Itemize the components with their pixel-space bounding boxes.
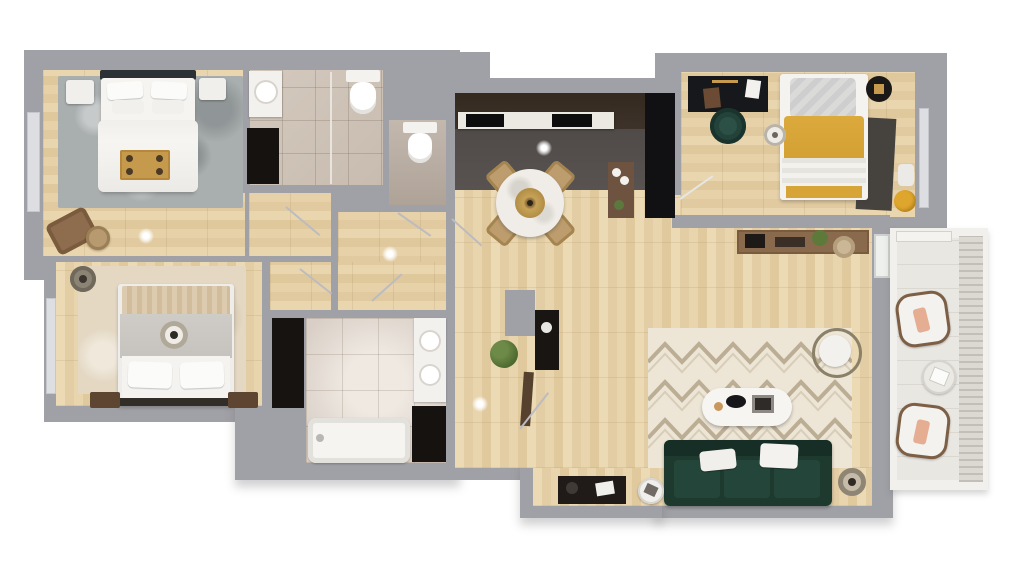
- room-corridor: [249, 193, 338, 256]
- rolled-towel: [620, 176, 629, 185]
- wall-wc-bottom: [338, 205, 446, 212]
- basket: [833, 236, 855, 258]
- wall-bath2-top: [306, 310, 446, 318]
- toilet-bowl: [350, 82, 376, 114]
- plant: [490, 340, 518, 368]
- wardrobe: [272, 318, 304, 408]
- window-bedroom2: [46, 298, 56, 394]
- bed2-pillow: [180, 361, 225, 389]
- ceiling-spot: [472, 396, 488, 412]
- laundry-basket: [898, 164, 914, 186]
- toilet-tank: [403, 122, 437, 133]
- media-console-dish: [566, 482, 578, 494]
- shower-screen: [330, 72, 332, 184]
- media-console-paper: [595, 481, 615, 497]
- wall-hall-kitchen-upper: [446, 70, 455, 310]
- nightstand: [90, 392, 120, 408]
- potted-herb: [614, 200, 624, 210]
- bed1-pillow: [151, 81, 188, 100]
- bathroom-cabinet: [247, 128, 279, 184]
- window-bedroom3: [919, 108, 929, 208]
- bed1-pillow: [152, 100, 184, 114]
- ceiling-spot: [536, 140, 552, 156]
- coffee-table-bowl: [726, 395, 746, 408]
- console-plant: [812, 230, 828, 246]
- console-item: [775, 237, 805, 247]
- bed2-throw: [122, 286, 230, 316]
- floor-lamp-center: [79, 275, 87, 283]
- window-bedroom1: [27, 112, 40, 212]
- cooktop: [466, 114, 504, 127]
- room-hall-mid: [270, 262, 446, 310]
- wall-bath1-bottom: [243, 185, 383, 193]
- wall-entry-stub: [505, 290, 535, 336]
- wall-bed1-bed2: [43, 256, 270, 262]
- bed3-throw-white: [782, 158, 866, 188]
- sofa-pillow: [699, 448, 737, 472]
- balcony-door: [874, 234, 890, 278]
- bathtub: [308, 418, 410, 463]
- ceiling-light-center: [170, 331, 178, 339]
- armchair-cushion: [819, 335, 851, 367]
- bathroom-cabinet: [412, 406, 446, 462]
- appliance-column: [645, 93, 675, 218]
- washbasin: [254, 80, 278, 104]
- washbasin: [419, 364, 441, 386]
- tray-plate: [126, 168, 133, 175]
- tray-plate: [156, 168, 163, 175]
- floor-lamp-center: [848, 478, 856, 486]
- balcony-railing: [959, 236, 983, 482]
- bedside-table-dot: [772, 132, 778, 138]
- coffee-table-book: [752, 395, 774, 413]
- nightstand-lamp: [874, 84, 884, 94]
- pouf: [894, 190, 916, 212]
- tray-plate: [156, 155, 163, 162]
- floor-plan-render: [0, 0, 1024, 576]
- ceiling-spot: [382, 246, 398, 262]
- wall-bed2-right: [262, 262, 270, 406]
- kitchen-sink: [552, 114, 592, 127]
- wall-bath1-wc: [383, 70, 389, 205]
- tray-plate: [126, 155, 133, 162]
- wall-bed3-bottom: [672, 215, 890, 228]
- nightstand: [66, 80, 94, 104]
- bed3-pillows: [790, 78, 856, 118]
- side-table: [86, 226, 110, 250]
- toilet-tank: [346, 70, 380, 82]
- bed2-headboard: [118, 398, 234, 406]
- ceiling-spot: [138, 228, 154, 244]
- desk-paper: [745, 79, 761, 99]
- desk-notebook: [703, 87, 721, 109]
- rolled-towel: [612, 168, 621, 177]
- wall-hall-left: [331, 185, 338, 310]
- coffee-table-cup: [714, 402, 723, 411]
- bed1-pillow: [112, 100, 144, 114]
- bathtub-faucet: [316, 434, 324, 442]
- bed2-pillow: [128, 361, 173, 389]
- balcony-planter: [896, 231, 952, 242]
- pendant-lamp-center: [527, 200, 533, 206]
- sofa-back: [664, 440, 832, 456]
- shelf-vase: [541, 322, 552, 333]
- office-chair-seat: [719, 117, 737, 135]
- sofa-pillow: [759, 443, 798, 469]
- wall-hall-kitchen-lower: [446, 330, 455, 465]
- toilet-bowl: [408, 133, 432, 163]
- nightstand: [199, 78, 226, 100]
- bookshelf: [535, 310, 559, 370]
- bed3-blanket-edge: [786, 186, 862, 198]
- desk-pen-tray: [712, 80, 738, 83]
- bed1-pillow: [106, 81, 143, 100]
- washbasin: [419, 330, 441, 352]
- nightstand: [228, 392, 258, 408]
- console-item: [745, 234, 765, 248]
